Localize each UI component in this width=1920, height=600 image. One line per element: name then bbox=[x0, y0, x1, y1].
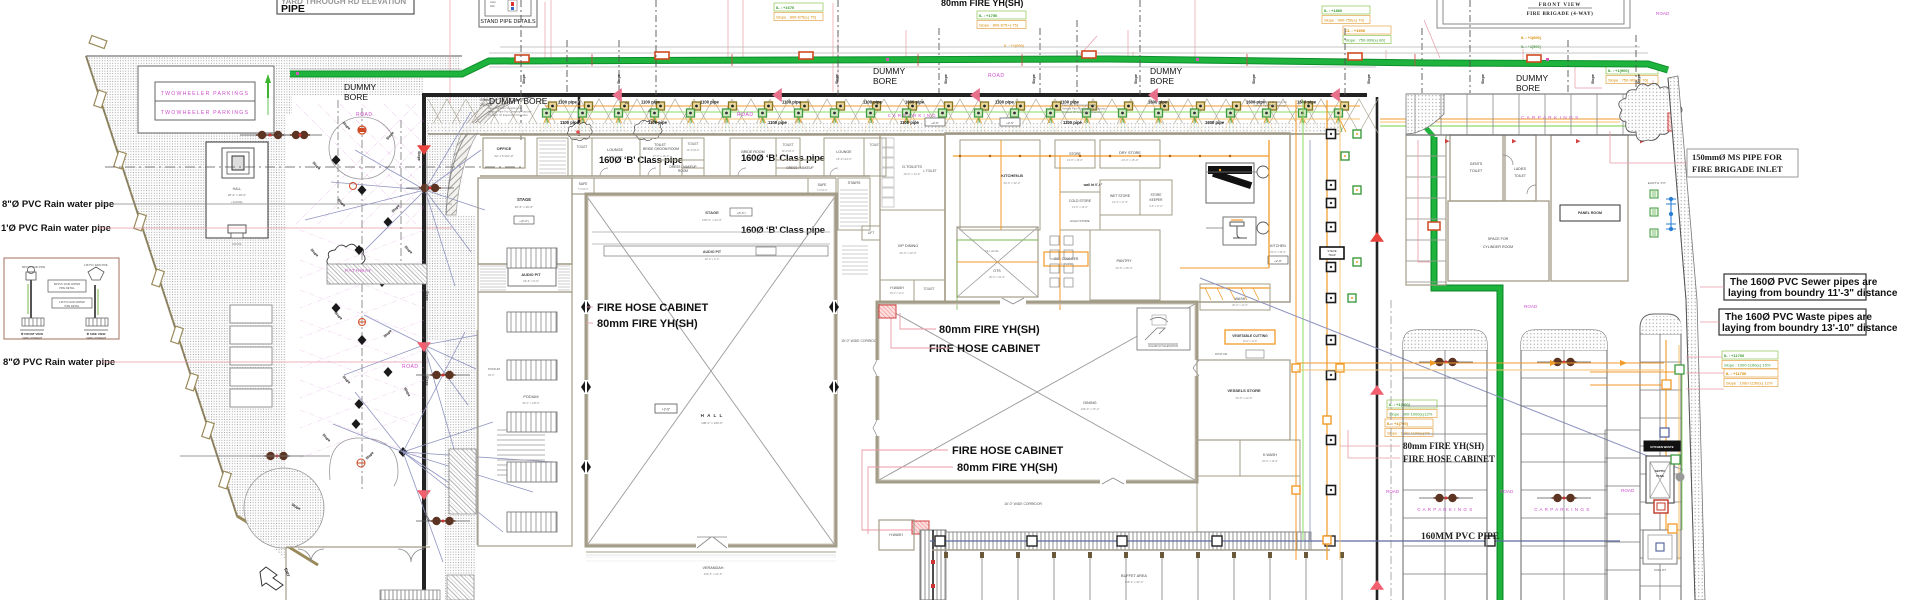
svg-text:ROAD: ROAD bbox=[1500, 489, 1514, 494]
svg-text:1100 pipe: 1100 pipe bbox=[768, 120, 788, 125]
svg-text:80mm FIRE YH(SH): 80mm FIRE YH(SH) bbox=[1403, 441, 1484, 451]
svg-text:80mm FIRE YH(SH): 80mm FIRE YH(SH) bbox=[957, 462, 1058, 474]
svg-text:TOILET: TOILET bbox=[782, 143, 793, 147]
svg-text:ROOM: ROOM bbox=[678, 169, 688, 173]
svg-text:Slope : 1060-1150(±) 12%: Slope : 1060-1150(±) 12% bbox=[1726, 380, 1773, 385]
svg-text:Slope: Slope bbox=[1637, 74, 1641, 84]
svg-text:1100 pipe: 1100 pipe bbox=[558, 100, 578, 105]
svg-text:Slope: Slope bbox=[417, 151, 421, 161]
svg-text:80mm FIRE YH(SH): 80mm FIRE YH(SH) bbox=[941, 0, 1023, 8]
svg-text:1'Ø PVC Rain water pipe: 1'Ø PVC Rain water pipe bbox=[1, 223, 111, 234]
svg-text:Slope: Slope bbox=[835, 74, 839, 84]
svg-text:8Ø PVC RAIN WATER: 8Ø PVC RAIN WATER bbox=[54, 282, 80, 286]
svg-text:laying from boundry 13'-10" di: laying from boundry 13'-10" distance bbox=[1722, 323, 1898, 334]
svg-text:80mm FIRE YH(SH): 80mm FIRE YH(SH) bbox=[597, 318, 698, 330]
svg-text:TWOWHEELER PARKINGS: TWOWHEELER PARKINGS bbox=[161, 91, 249, 97]
svg-text:19'-6" x 14'-6": 19'-6" x 14'-6" bbox=[903, 172, 920, 176]
svg-text:CL : +1900: CL : +1900 bbox=[1345, 28, 1366, 33]
svg-text:22'-1 5"x10'-0": 22'-1 5"x10'-0" bbox=[494, 154, 513, 158]
svg-text:DRESS / MAKEUP: DRESS / MAKEUP bbox=[786, 166, 813, 170]
svg-text:DINING: DINING bbox=[1083, 401, 1096, 405]
svg-text:C A R P A R K I N G S: C A R P A R K I N G S bbox=[1521, 115, 1579, 120]
svg-text:136'-0" x 70'-3": 136'-0" x 70'-3" bbox=[1081, 407, 1100, 411]
svg-text:ROAD: ROAD bbox=[737, 112, 753, 118]
svg-text:SEPTIC: SEPTIC bbox=[1655, 469, 1667, 473]
svg-text:Slope: Slope bbox=[944, 74, 948, 84]
svg-text:STAGE: STAGE bbox=[517, 197, 531, 202]
svg-text:Slope: Slope bbox=[1252, 74, 1256, 84]
svg-text:VESSELS STORE: VESSELS STORE bbox=[1227, 388, 1261, 393]
svg-text:1600 pipe: 1600 pipe bbox=[1205, 120, 1225, 125]
svg-text:PATHWAY: PATHWAY bbox=[345, 268, 372, 273]
svg-text:SAFE: SAFE bbox=[579, 182, 589, 186]
svg-text:17'-0" x 16'-0": 17'-0" x 16'-0" bbox=[652, 154, 669, 158]
svg-text:✚ SIDE VIEW: ✚ SIDE VIEW bbox=[87, 332, 106, 336]
svg-text:7'-0"x6'-0": 7'-0"x6'-0" bbox=[817, 189, 828, 192]
svg-text:1100 pipe: 1100 pipe bbox=[700, 100, 720, 105]
svg-text:IL : +1(600): IL : +1(600) bbox=[1004, 44, 1025, 48]
svg-text:C A R P A R K I N G S: C A R P A R K I N G S bbox=[1534, 507, 1590, 512]
svg-text:COLD STORE: COLD STORE bbox=[1069, 199, 1092, 203]
svg-text:13'-6" x 13'-0": 13'-6" x 13'-0" bbox=[1072, 205, 1088, 209]
svg-text:H.WASH: H.WASH bbox=[889, 533, 903, 537]
svg-text:45'-0": 45'-0" bbox=[488, 373, 495, 377]
svg-text:20'-0" x 15'-0": 20'-0" x 15'-0" bbox=[1121, 158, 1138, 162]
svg-text:AUDIO PIT: AUDIO PIT bbox=[521, 273, 541, 277]
svg-text:KITCHEN-B: KITCHEN-B bbox=[1001, 173, 1023, 178]
svg-text:FIRE BRIGADE (4-WAY): FIRE BRIGADE (4-WAY) bbox=[1527, 12, 1594, 17]
svg-text:FRONT VIEW: FRONT VIEW bbox=[1539, 3, 1581, 8]
svg-text:Slope: Slope bbox=[1032, 74, 1036, 84]
svg-text:Slope: Slope bbox=[1591, 74, 1595, 84]
svg-text:C A R P A R K I N G: C A R P A R K I N G bbox=[888, 113, 937, 118]
svg-text:ROAD: ROAD bbox=[1656, 11, 1670, 16]
svg-text:FIRE HOSE CABINET: FIRE HOSE CABINET bbox=[929, 343, 1041, 355]
svg-text:VIP DINING: VIP DINING bbox=[898, 244, 918, 248]
svg-text:PODIUM: PODIUM bbox=[523, 395, 538, 399]
svg-text:DUMMY BORE: DUMMY BORE bbox=[489, 96, 548, 106]
svg-text:FIRE HOSE CABINET: FIRE HOSE CABINET bbox=[597, 302, 709, 314]
svg-text:15'-4" x 11'-2": 15'-4" x 11'-2" bbox=[890, 292, 905, 295]
svg-text:KITCHEN: KITCHEN bbox=[1270, 244, 1286, 248]
svg-text:DUMMY: DUMMY bbox=[344, 82, 376, 92]
svg-text:BORE: BORE bbox=[1150, 76, 1174, 86]
svg-text:10'-0"x8'-0": 10'-0"x8'-0" bbox=[781, 149, 794, 153]
svg-text:TOILET: TOILET bbox=[1514, 174, 1526, 178]
svg-text:Slope : 900-1000(±)12%: Slope : 900-1000(±)12% bbox=[1389, 411, 1433, 416]
svg-text:OFFICE: OFFICE bbox=[497, 146, 512, 151]
svg-text:Slope : 800-675(±) 75(: Slope : 800-675(±) 75( bbox=[776, 14, 817, 19]
svg-text:CYLINDER ROOM: CYLINDER ROOM bbox=[1483, 245, 1513, 249]
svg-text:10'-0"x8'-0": 10'-0"x8'-0" bbox=[686, 148, 699, 152]
svg-text:LADIES: LADIES bbox=[1514, 167, 1527, 171]
svg-text:A-: A- bbox=[625, 100, 630, 105]
svg-text:Slope : 1000-1160(±) 15%: Slope : 1000-1160(±) 15% bbox=[1724, 362, 1771, 367]
svg-text:Slope : 800-675+(-75(: Slope : 800-675+(-75( bbox=[979, 22, 1019, 27]
svg-text:22'-0" x 6'-0": 22'-0" x 6'-0" bbox=[1059, 263, 1073, 266]
svg-text:BRIDE ROOM: BRIDE ROOM bbox=[741, 150, 764, 154]
svg-text:80mm FIRE YH(SH): 80mm FIRE YH(SH) bbox=[939, 324, 1040, 336]
svg-text:VEGETABLE CUTTING: VEGETABLE CUTTING bbox=[1232, 334, 1268, 338]
svg-text:1'Ø PVC RAIN WATER: 1'Ø PVC RAIN WATER bbox=[59, 301, 85, 304]
svg-text:HALL: HALL bbox=[233, 187, 242, 191]
svg-text:BORE: BORE bbox=[1516, 83, 1540, 93]
svg-text:40'-6" x 20'-6": 40'-6" x 20'-6" bbox=[515, 205, 533, 209]
svg-text:9'-6" x 17'-0": 9'-6" x 17'-0" bbox=[1149, 205, 1163, 208]
svg-text:Slope: Slope bbox=[1134, 74, 1138, 84]
svg-text:+(5'-6"): +(5'-6") bbox=[736, 211, 745, 215]
svg-text:PODIUM: PODIUM bbox=[488, 367, 501, 371]
svg-text:TOILET: TOILET bbox=[1470, 169, 1483, 173]
svg-text:The 160Ø PVC Waste pipes are: The 160Ø PVC Waste pipes are bbox=[1725, 312, 1872, 323]
svg-text:GENTS: GENTS bbox=[1470, 162, 1483, 166]
svg-text:ROAD: ROAD bbox=[1524, 304, 1538, 309]
svg-text:LOUNGE: LOUNGE bbox=[836, 150, 852, 154]
svg-text:22'-6" x 6'-0": 22'-6" x 6'-0" bbox=[523, 279, 539, 283]
svg-text:C A R P A R K I N G S: C A R P A R K I N G S bbox=[1417, 507, 1473, 512]
svg-text:EARTH PIT: EARTH PIT bbox=[1648, 181, 1666, 185]
svg-text:+2'-6": +2'-6" bbox=[662, 408, 670, 412]
svg-text:H A L L: H A L L bbox=[701, 413, 724, 418]
svg-text:Slope : 900-750(±) 79(: Slope : 900-750(±) 79( bbox=[1324, 17, 1365, 22]
svg-text:OTS: OTS bbox=[993, 269, 1001, 273]
svg-text:20'-0" x 11'-0": 20'-0" x 11'-0" bbox=[1232, 303, 1248, 307]
svg-text:150mmØ MS PIPE FOR: 150mmØ MS PIPE FOR bbox=[1692, 152, 1783, 162]
svg-text:IL : +1(600): IL : +1(600) bbox=[1521, 36, 1542, 40]
svg-text:1100 pipe: 1100 pipe bbox=[1063, 120, 1083, 125]
svg-text:15'-4" x 17'-6": 15'-4" x 17'-6" bbox=[1112, 200, 1128, 204]
svg-text:TOILET: TOILET bbox=[923, 287, 934, 291]
svg-text:SOAK PIT: SOAK PIT bbox=[1654, 568, 1666, 572]
svg-text:FIRE HOSE CABINET: FIRE HOSE CABINET bbox=[952, 445, 1064, 457]
svg-text:109'-6" x 22'-6": 109'-6" x 22'-6" bbox=[704, 572, 723, 576]
svg-text:VERANDAH: VERANDAH bbox=[702, 566, 723, 570]
svg-text:YARD HYDRANT: YARD HYDRANT bbox=[86, 336, 107, 340]
svg-text:1100 pipe: 1100 pipe bbox=[560, 120, 580, 125]
svg-text:15'-0" WIDE CORRIDOR: 15'-0" WIDE CORRIDOR bbox=[841, 339, 879, 343]
svg-text:H.WASH: H.WASH bbox=[890, 286, 904, 290]
svg-text:PIPE DETAIL: PIPE DETAIL bbox=[65, 305, 81, 308]
svg-text:Slope : 750-900(±) 76(: Slope : 750-900(±) 76( bbox=[1608, 77, 1649, 82]
svg-text:1600 pipe: 1600 pipe bbox=[1148, 100, 1168, 105]
svg-text:(Indoed. Of Inspection Chamber: (Indoed. Of Inspection Chamber bbox=[488, 113, 528, 117]
svg-text:1600 pipe: 1600 pipe bbox=[905, 100, 925, 105]
svg-text:13'-0" x 15'-0": 13'-0" x 15'-0" bbox=[1067, 158, 1083, 162]
svg-text:BUFFET AREA: BUFFET AREA bbox=[1121, 574, 1147, 578]
svg-text:28'-0" x 28'-0": 28'-0" x 28'-0" bbox=[228, 193, 246, 197]
svg-text:YARD HYDRANT: YARD HYDRANT bbox=[22, 336, 43, 340]
svg-text:108'-0" x 23'-0": 108'-0" x 23'-0" bbox=[702, 218, 722, 222]
svg-text:8"Ø PVC Rain water pipe: 8"Ø PVC Rain water pipe bbox=[2, 199, 114, 210]
svg-text:laying from boundry 11'-3" dis: laying from boundry 11'-3" distance bbox=[1728, 288, 1898, 299]
svg-text:TOILET: TOILET bbox=[687, 142, 698, 146]
svg-text:+2'-6": +2'-6" bbox=[931, 121, 939, 125]
svg-text:GOLD STORE: GOLD STORE bbox=[1070, 219, 1090, 223]
svg-text:1'Ø PVC RAIN PIPE: 1'Ø PVC RAIN PIPE bbox=[84, 263, 108, 267]
svg-text:PANTRY: PANTRY bbox=[1116, 259, 1132, 263]
svg-text:BORE: BORE bbox=[344, 92, 368, 102]
svg-text:1100 pipe: 1100 pipe bbox=[900, 120, 920, 125]
svg-text:DUMMY: DUMMY bbox=[1516, 73, 1548, 83]
svg-text:WASH: WASH bbox=[1235, 297, 1246, 301]
svg-text:TOILET: TOILET bbox=[576, 145, 587, 149]
svg-text:17'-0" x 15'-6": 17'-0" x 15'-6" bbox=[744, 157, 761, 161]
svg-text:1100 pipe: 1100 pipe bbox=[995, 100, 1015, 105]
svg-text:1600 pipe: 1600 pipe bbox=[1297, 100, 1317, 105]
svg-text:1100 pipe: 1100 pipe bbox=[782, 100, 802, 105]
svg-text:The 160Ø PVC Sewer pipes are: The 160Ø PVC Sewer pipes are bbox=[1730, 277, 1878, 288]
svg-text:+(0'-0"): +(0'-0") bbox=[519, 219, 529, 223]
svg-text:Slope : 750-900(±) 80(: Slope : 750-900(±) 80( bbox=[1345, 37, 1386, 42]
svg-text:33'-0" x 33'-0": 33'-0" x 33'-0" bbox=[1270, 250, 1286, 254]
svg-text:DRY STORE: DRY STORE bbox=[1119, 151, 1141, 155]
svg-text:160Ø ‘B’ Class pipe: 160Ø ‘B’ Class pipe bbox=[741, 225, 825, 236]
svg-text:IL : +1(700): IL : +1(700) bbox=[1387, 421, 1409, 426]
svg-text:Slope: Slope bbox=[522, 74, 526, 84]
svg-text:+2'-6": +2'-6" bbox=[1274, 259, 1282, 263]
svg-text:FIRE BRIGADE INLET: FIRE BRIGADE INLET bbox=[1692, 164, 1783, 174]
svg-text:Giant: Giant bbox=[490, 1, 496, 4]
svg-text:108'-0" x 103'-6": 108'-0" x 103'-6" bbox=[701, 421, 723, 425]
svg-text:ROSTUM: ROSTUM bbox=[1215, 352, 1228, 356]
svg-text:KEEPER: KEEPER bbox=[1150, 198, 1164, 202]
svg-text:SAFE: SAFE bbox=[818, 183, 828, 187]
svg-text:ROAD: ROAD bbox=[1386, 489, 1400, 494]
svg-text:108'-3" x 40'-0": 108'-3" x 40'-0" bbox=[1125, 580, 1144, 584]
svg-text:ROAD: ROAD bbox=[988, 73, 1004, 79]
svg-text:SPACE FOR: SPACE FOR bbox=[1488, 237, 1509, 241]
svg-text:L.TOILET: L.TOILET bbox=[923, 169, 937, 173]
svg-text:TOILET: TOILET bbox=[869, 143, 880, 147]
svg-text:BORE: BORE bbox=[873, 76, 897, 86]
svg-text:IL : +11700: IL : +11700 bbox=[1724, 353, 1745, 358]
svg-text:TWOWHEELER PARKINGS: TWOWHEELER PARKINGS bbox=[161, 110, 249, 116]
svg-text:PIPE: PIPE bbox=[281, 3, 305, 15]
svg-text:IL : +1860: IL : +1860 bbox=[1324, 8, 1343, 13]
svg-text:PANEL ROOM: PANEL ROOM bbox=[1578, 211, 1602, 215]
svg-text:1100 pipe: 1100 pipe bbox=[863, 100, 883, 105]
svg-text:10'-6" x 11'-6": 10'-6" x 11'-6" bbox=[1243, 340, 1258, 343]
svg-text:22'-6" x 16'-6": 22'-6" x 16'-6" bbox=[1262, 459, 1278, 463]
svg-text:G.TOILETS: G.TOILETS bbox=[902, 165, 922, 169]
svg-text:+1(600)L: +1(600)L bbox=[231, 200, 243, 204]
svg-text:Slope : 1000-1100(±)2%: Slope : 1000-1100(±)2% bbox=[1387, 430, 1430, 435]
svg-text:AUDIO PIT: AUDIO PIT bbox=[703, 250, 722, 254]
svg-text:Slope: Slope bbox=[1367, 74, 1371, 84]
svg-text:✚ FRONT VIEW: ✚ FRONT VIEW bbox=[21, 332, 43, 336]
svg-text:160MM PVC PIPE: 160MM PVC PIPE bbox=[1421, 532, 1499, 542]
svg-text:IL : +1750: IL : +1750 bbox=[979, 13, 998, 18]
svg-text:30'-0" x 32'-0": 30'-0" x 32'-0" bbox=[1003, 181, 1020, 185]
svg-text:40'-0" x 6'-0": 40'-0" x 6'-0" bbox=[705, 257, 720, 261]
svg-text:8"Ø PVC Rain water pipe: 8"Ø PVC Rain water pipe bbox=[3, 357, 115, 368]
svg-text:20'-6" x 25'-0": 20'-6" x 25'-0" bbox=[1115, 266, 1132, 270]
svg-text:Slope: Slope bbox=[1481, 74, 1485, 84]
svg-text:WET STORE: WET STORE bbox=[1110, 194, 1131, 198]
svg-text:KITCHEN WASTE: KITCHEN WASTE bbox=[1650, 445, 1673, 449]
svg-text:SULAB CUT ELEVATION: SULAB CUT ELEVATION bbox=[1148, 344, 1178, 348]
svg-text:STORE: STORE bbox=[1151, 193, 1162, 197]
svg-text:16'-0" WIDE CORRIDOR: 16'-0" WIDE CORRIDOR bbox=[1004, 502, 1042, 506]
svg-text:PIPE DETAIL: PIPE DETAIL bbox=[59, 286, 75, 290]
svg-text:(Indoed. Of Inspection Chamber: (Indoed. Of Inspection Chamber bbox=[1062, 110, 1102, 114]
svg-text:IL : +1670: IL : +1670 bbox=[776, 5, 795, 10]
svg-text:7'-0"x6'-0": 7'-0"x6'-0" bbox=[578, 188, 589, 191]
svg-text:SILL LEVEL: SILL LEVEL bbox=[985, 249, 1000, 253]
svg-text:STAND PIPE DETAILS: STAND PIPE DETAILS bbox=[480, 19, 536, 25]
svg-text:18'-0"x14'-6": 18'-0"x14'-6" bbox=[836, 157, 852, 161]
svg-text:Wall: Wall bbox=[490, 5, 495, 8]
svg-text:2(600)L: 2(600)L bbox=[232, 242, 243, 246]
svg-text:8Ø PVC RAIN PIPE: 8Ø PVC RAIN PIPE bbox=[22, 265, 45, 269]
svg-text:TANK: TANK bbox=[1656, 474, 1665, 478]
svg-text:Vertical Pipe For Cleaning: Vertical Pipe For Cleaning bbox=[1253, 103, 1286, 107]
svg-text:BRIDE GROOM ROOM: BRIDE GROOM ROOM bbox=[643, 147, 679, 151]
svg-text:IL : +11700: IL : +11700 bbox=[1726, 371, 1747, 376]
svg-text:DUMMY: DUMMY bbox=[1150, 66, 1182, 76]
svg-text:IL : +1(900): IL : +1(900) bbox=[1608, 68, 1630, 73]
svg-text:TRAP: TRAP bbox=[1328, 253, 1336, 257]
svg-text:45'-0" x 145'-0": 45'-0" x 145'-0" bbox=[522, 401, 539, 405]
svg-text:Slope: Slope bbox=[617, 74, 621, 84]
svg-text:1100 pipe: 1100 pipe bbox=[641, 100, 661, 105]
svg-text:DUMMY: DUMMY bbox=[873, 66, 905, 76]
svg-text:+2'-6": +2'-6" bbox=[1006, 121, 1014, 125]
svg-text:33'-6" x 22'-6": 33'-6" x 22'-6" bbox=[1235, 396, 1252, 400]
svg-text:LIFT: LIFT bbox=[868, 231, 875, 235]
svg-text:STAGE: STAGE bbox=[705, 210, 719, 215]
svg-text:LOUNGE: LOUNGE bbox=[607, 148, 624, 152]
svg-text:K.WASH: K.WASH bbox=[1263, 453, 1277, 457]
svg-text:FIRE HOSE CABINET: FIRE HOSE CABINET bbox=[1403, 454, 1495, 464]
svg-text:ROAD: ROAD bbox=[1621, 488, 1635, 493]
svg-text:STAIRS: STAIRS bbox=[848, 181, 861, 185]
svg-text:18'-0"x14'-6": 18'-0"x14'-6" bbox=[607, 155, 623, 159]
svg-text:30'-0" x 31'-6": 30'-0" x 31'-6" bbox=[989, 275, 1005, 279]
svg-text:26'-0" x 20'-0": 26'-0" x 20'-0" bbox=[899, 251, 916, 255]
